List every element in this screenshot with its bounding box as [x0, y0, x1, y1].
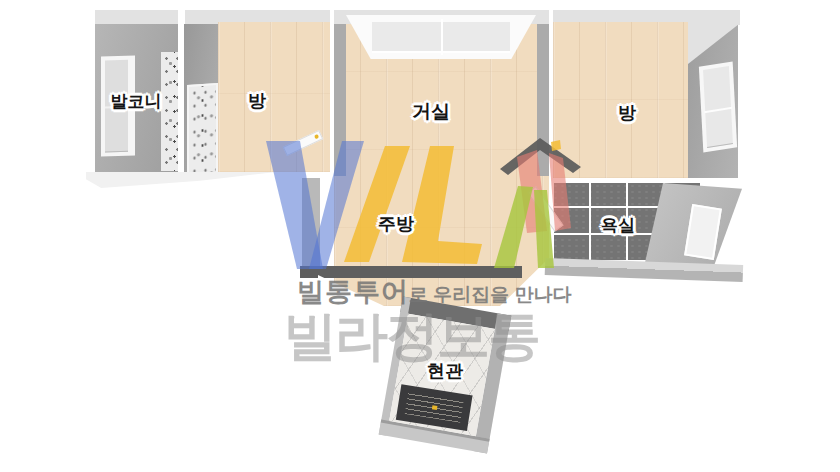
room-right-floor [553, 22, 688, 178]
room-left-floor [218, 22, 330, 172]
kitchen-wall-left [302, 178, 320, 266]
living-wall-left [334, 24, 346, 176]
label-balcony: 발코니 [111, 90, 162, 113]
room-right-window [699, 61, 737, 152]
label-kitchen: 주방 [378, 212, 414, 236]
floor-plan: 빌통투어로 우리집을 만나다 빌라정보통 발코니 방 거실 방 주방 욕실 현관 [0, 0, 840, 472]
label-entrance: 현관 [427, 359, 463, 383]
label-room-left: 방 [248, 89, 266, 113]
label-living: 거실 [412, 99, 450, 125]
watermark-brand: 빌라정보통 [284, 301, 539, 373]
balcony-terrazzo-wall [161, 52, 178, 171]
floor-shadow [86, 172, 276, 188]
room-left-terrazzo-window [187, 83, 218, 177]
label-bath: 욕실 [601, 214, 635, 237]
living-wall-right [537, 24, 549, 176]
living-kitchen-floor [334, 24, 549, 306]
label-room-right: 방 [618, 101, 636, 125]
living-window [346, 15, 536, 59]
